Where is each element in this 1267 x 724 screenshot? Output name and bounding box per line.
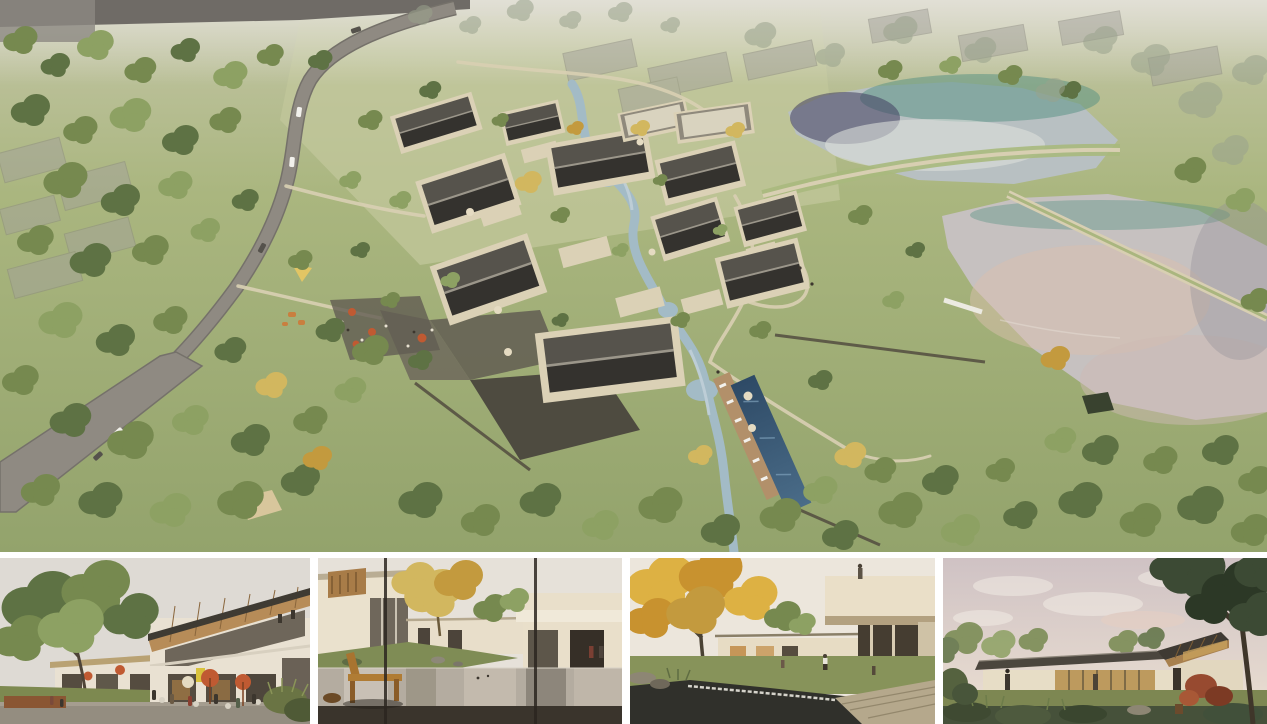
thumb-lakeside-pavilion: [943, 558, 1267, 724]
pavement: [0, 706, 310, 724]
parasol-icon: [748, 424, 756, 432]
tree-stump: [1175, 704, 1183, 714]
person: [599, 646, 604, 658]
aerial-masterplan-rendering: [0, 0, 1267, 552]
rock: [1127, 705, 1151, 715]
orange-parasol-icon: [368, 328, 376, 336]
window-mullion: [534, 558, 537, 724]
aerial-masterplan-figure: [0, 0, 1267, 552]
dark-entry: [570, 630, 604, 668]
orange-parasol-icon: [348, 308, 356, 316]
thumb-street-cafe: [0, 558, 310, 724]
orange-parasol-icon: [115, 665, 125, 675]
person-on-balcony: [858, 564, 863, 579]
parasol-icon: [744, 392, 753, 401]
orange-parasol-icon: [418, 334, 427, 343]
corten-planter: [4, 696, 66, 708]
orange-parasol-icon: [84, 672, 93, 681]
cantilever-band: [516, 610, 622, 622]
presentation-board: [0, 0, 1267, 724]
courtyard-pool-rendering: [318, 558, 622, 724]
garden-pond-rendering: [630, 558, 935, 724]
parasol-icon: [494, 306, 502, 314]
car: [289, 157, 295, 167]
parasol-icon: [637, 139, 644, 146]
parasol-icon: [504, 348, 512, 356]
person-on-lawn: [1005, 669, 1010, 690]
street-cafe-rendering: [0, 558, 310, 724]
thumb-garden-pond: [630, 558, 935, 724]
window-mullion: [384, 558, 387, 724]
timber-gable: [328, 568, 366, 598]
person: [589, 646, 594, 658]
wood-stool: [323, 693, 341, 703]
parasol-icon: [466, 208, 474, 216]
lakeside-pavilion-rendering: [943, 558, 1267, 724]
thumb-courtyard-pool: [318, 558, 622, 724]
parasol-icon: [649, 249, 656, 256]
